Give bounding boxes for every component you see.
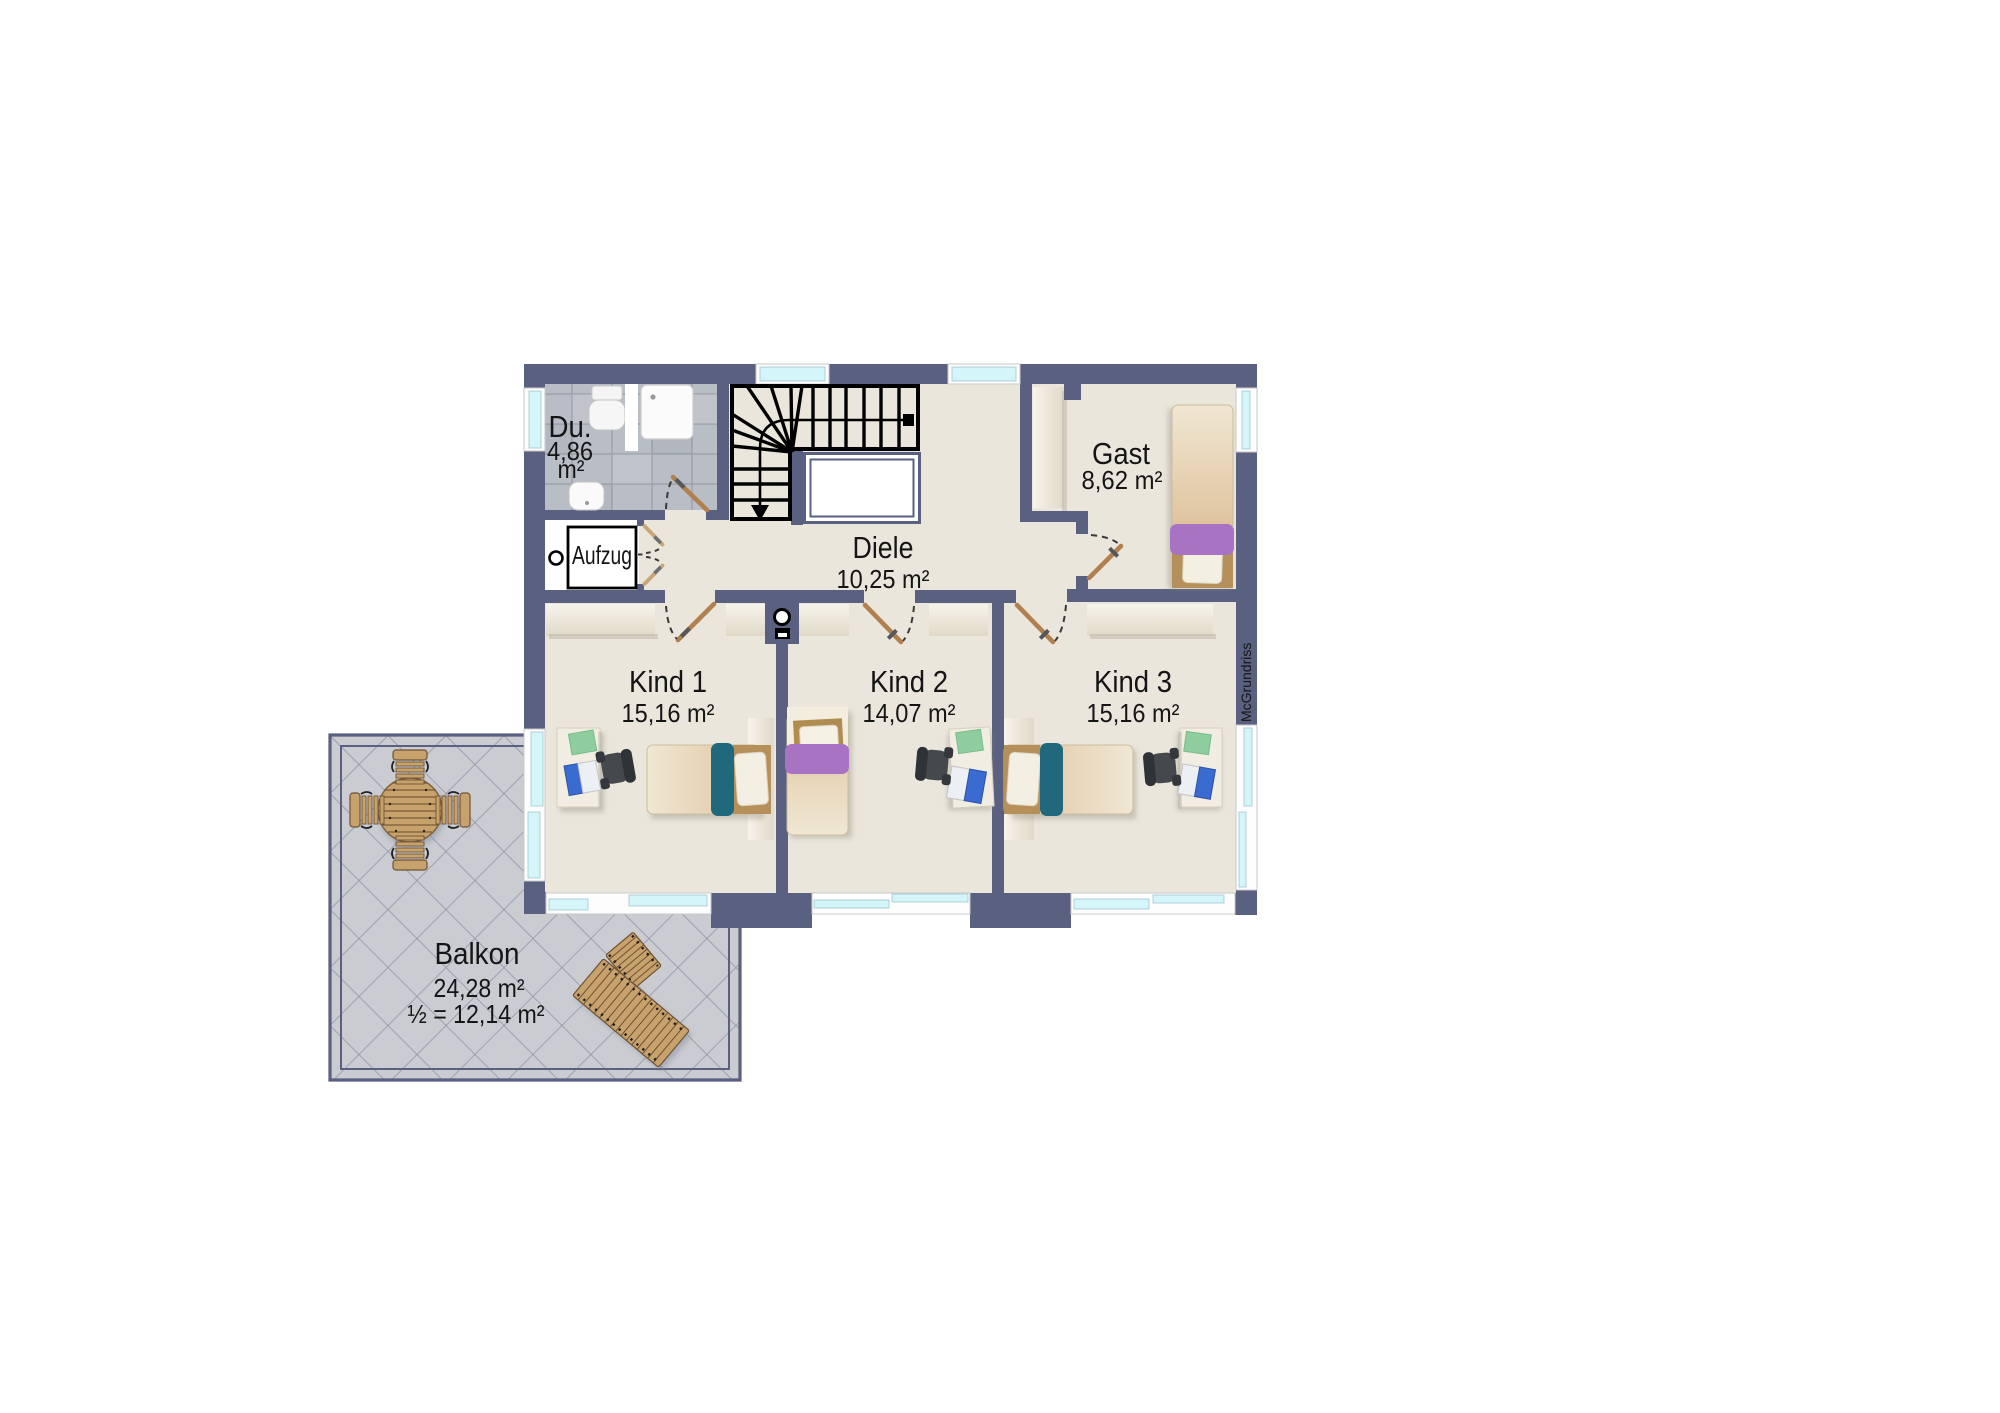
svg-text:10,25 m²: 10,25 m²	[837, 564, 930, 594]
svg-text:½ = 12,14 m²: ½ = 12,14 m²	[408, 999, 545, 1029]
svg-text:Balkon: Balkon	[435, 936, 520, 971]
svg-text:14,07 m²: 14,07 m²	[863, 698, 956, 728]
svg-text:McGrundriss: McGrundriss	[1238, 643, 1254, 722]
svg-text:m²: m²	[558, 454, 585, 484]
svg-text:Diele: Diele	[853, 530, 914, 565]
svg-text:15,16 m²: 15,16 m²	[1087, 698, 1180, 728]
svg-text:Kind 3: Kind 3	[1094, 664, 1172, 699]
svg-text:Kind 1: Kind 1	[629, 664, 707, 699]
svg-text:15,16 m²: 15,16 m²	[622, 698, 715, 728]
svg-text:8,62 m²: 8,62 m²	[1082, 465, 1163, 495]
svg-text:Aufzug: Aufzug	[572, 540, 632, 570]
svg-text:Kind 2: Kind 2	[870, 664, 948, 699]
